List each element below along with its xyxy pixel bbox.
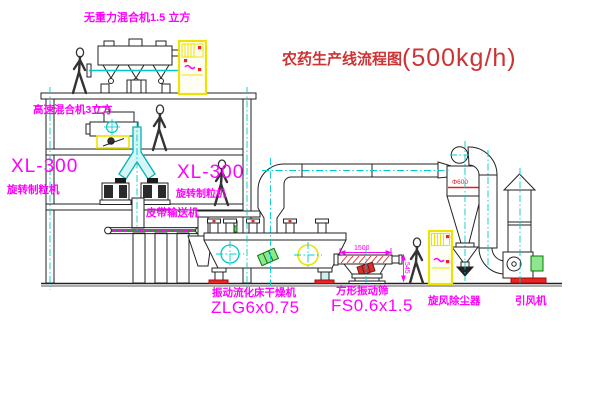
label-dryer-name: 振动流化床干燥机 [212,288,296,299]
discharge-duct [132,198,144,228]
ground-line [41,284,562,287]
label-sieve-model: FS0.6x1.5 [331,297,413,314]
person-roof [73,48,86,93]
label-granulator-left-model: XL-300 [11,157,78,176]
diagram-title: 农药生产线流程图(500kg/h) [282,44,517,73]
control-cabinet-2 [429,231,452,284]
label-sieve-name: 方形振动筛 [336,286,389,297]
control-cabinet-1 [179,41,206,94]
gravity-free-mixer [87,39,192,93]
granulator-left [100,178,131,205]
person-floor2 [153,105,166,150]
label-dryer-model: ZLG6x0.75 [211,299,300,316]
label-belt-conveyor: 皮带输送机 [146,208,199,219]
diagram-title-text: 农药生产线流程图 [282,48,402,69]
person-ground [410,238,423,283]
induced-draft-fan [503,252,546,283]
belt-conveyor [105,227,203,283]
label-cyclone: 旋风除尘器 [428,296,481,307]
label-fan: 引风机 [515,296,547,307]
label-high-speed-mixer: 高速混合机3立方 [33,105,112,116]
label-granulator-mid-name: 旋转制粒机 [176,190,226,200]
label-gravity-mixer: 无重力混合机1.5 立方 [84,13,190,24]
diagram-title-capacity: (500kg/h) [402,44,517,73]
dim-sieve-length: 1500 [354,245,370,252]
dim-cyclone-diameter: Φ600 [452,180,468,187]
exhaust-stack [504,174,535,252]
flow-diagram-canvas: 农药生产线流程图(500kg/h) 无重力混合机1.5 立方 高速混合机3立方 … [0,0,600,403]
vibrating-sieve [334,254,402,284]
label-granulator-left-name: 旋转制粒机 [7,185,60,196]
label-granulator-mid-model: XL-300 [177,163,244,182]
dim-sieve-outlet-height: 545 [403,262,410,274]
